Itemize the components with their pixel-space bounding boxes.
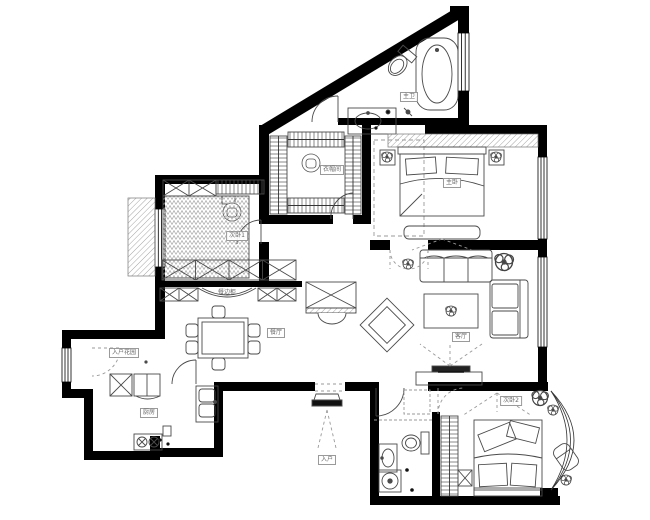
plant-icon (382, 152, 393, 162)
window-icon (458, 33, 469, 91)
window-icon (62, 348, 71, 382)
bedside-table-icon (458, 470, 472, 486)
living-area (390, 250, 528, 385)
plant-icon (532, 391, 549, 406)
kitchen-cabinet-icon (134, 374, 160, 399)
piano-icon (306, 282, 356, 324)
plant-icon (561, 475, 572, 485)
toilet-icon (402, 432, 429, 454)
entry (312, 384, 345, 448)
bay-window-icon (128, 198, 155, 276)
plant-icon (495, 253, 514, 270)
master-bedroom (374, 134, 538, 250)
window-icon (538, 157, 547, 239)
light-projection (420, 344, 482, 366)
plant-icon (491, 152, 502, 162)
door-icon (438, 388, 464, 414)
coffee-table-icon (424, 294, 478, 328)
washbasin-icon (379, 444, 397, 472)
bed-bench-icon (404, 226, 480, 239)
lounge-chair-icon (302, 154, 320, 172)
floor-plan: 主卫 主卧 衣帽间 次卧1 餐边柜 餐厅 客厅 厨房 入户花园 次卧2 入户 (0, 0, 650, 520)
room-label-cloakroom: 衣帽间 (320, 165, 344, 175)
bathtub-icon (416, 38, 458, 110)
room-label-dining: 餐厅 (267, 328, 285, 338)
dining-table-icon (186, 306, 260, 370)
fridge-icon (110, 374, 132, 396)
door-icon (172, 360, 196, 384)
sofa-3seat-icon (420, 250, 492, 282)
wardrobe-icon (388, 134, 538, 147)
armchair-icon (551, 441, 581, 473)
guest-bathroom (374, 388, 432, 492)
room-label-master-bath: 主卫 (400, 92, 418, 102)
room-label-master-bedroom: 主卧 (443, 178, 461, 188)
floor-plan-drawing (0, 0, 650, 520)
sofa-2seat-icon (490, 280, 528, 338)
shower-icon (404, 108, 412, 116)
door-opening (315, 384, 345, 391)
plant-icon (548, 405, 559, 415)
desk-shelf-icon (216, 180, 264, 194)
cloakroom (270, 132, 361, 219)
entry-step-icon (312, 394, 342, 406)
window-icon (538, 257, 547, 347)
light-projection (318, 410, 336, 448)
plant-icon (403, 259, 414, 269)
room-label-bedroom-2: 次卧2 (500, 396, 522, 406)
door-icon (376, 388, 404, 416)
room-label-living: 客厅 (452, 332, 470, 342)
kitchen (92, 348, 218, 450)
label-sideboard: 餐边柜 (216, 289, 238, 297)
room-label-bedroom-1: 次卧1 (226, 231, 248, 241)
diagonal-wall (260, 6, 465, 136)
double-bed-icon (474, 420, 542, 496)
bay-window-icon (551, 391, 574, 490)
room-label-kitchen: 厨房 (140, 408, 158, 418)
room-label-entrance: 入户 (318, 455, 336, 465)
rug-icon (360, 298, 414, 352)
shower-icon (404, 390, 430, 414)
room-label-entry-garden: 入户花园 (109, 348, 139, 358)
washing-machine-icon (379, 470, 401, 492)
bottle-icon (163, 426, 171, 436)
